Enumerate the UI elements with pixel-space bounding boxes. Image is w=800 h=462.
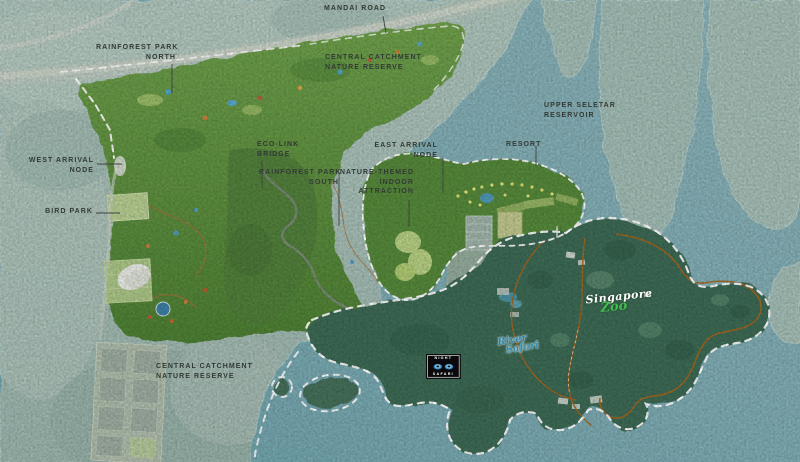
label-resort: RESORT: [506, 140, 556, 150]
label-nature-themed-indoor-attraction: NATURE-THEMED INDOOR ATTRACTION: [336, 168, 414, 197]
label-eco-link-bridge: ECO-LINK BRIDGE: [257, 140, 317, 159]
label-central-catchment-top: CENTRAL CATCHMENT NATURE RESERVE: [325, 53, 435, 72]
label-mandai-road: MANDAI ROAD: [324, 4, 394, 14]
label-central-catchment-bottom: CENTRAL CATCHMENT NATURE RESERVE: [156, 362, 266, 381]
label-west-arrival-node: WEST ARRIVAL NODE: [16, 156, 94, 175]
label-rainforest-park-north: RAINFOREST PARK NORTH: [96, 43, 176, 62]
cat-eyes-icon: [433, 364, 453, 370]
label-upper-seletar-reservoir: UPPER SELETAR RESERVOIR: [544, 101, 644, 120]
label-bird-park: BIRD PARK: [15, 207, 93, 217]
night-safari-logo: NIGHT SAFARI: [426, 354, 461, 379]
label-east-arrival-node: EAST ARRIVAL NODE: [360, 141, 438, 160]
label-line: MANDAI ROAD: [324, 4, 394, 14]
mandai-masterplan-screenshot: MANDAI ROAD RAINFOREST PARK NORTH CENTRA…: [0, 0, 800, 462]
label-rainforest-park-south: RAINFOREST PARK SOUTH: [259, 168, 339, 187]
